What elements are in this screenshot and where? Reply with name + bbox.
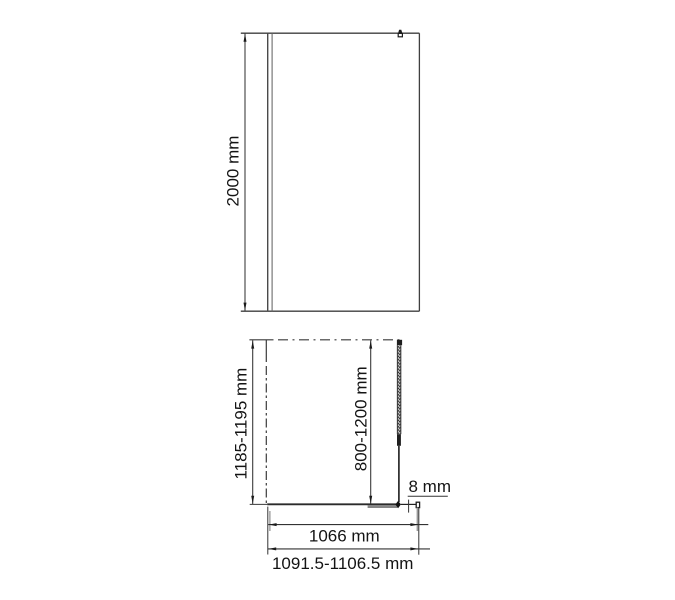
svg-text:8 mm: 8 mm: [409, 477, 452, 496]
svg-text:1066 mm: 1066 mm: [309, 526, 380, 545]
svg-text:800-1200 mm: 800-1200 mm: [352, 366, 371, 471]
svg-text:2000 mm: 2000 mm: [224, 136, 243, 207]
svg-text:1185-1195 mm: 1185-1195 mm: [232, 368, 251, 480]
svg-text:1091.5-1106.5 mm: 1091.5-1106.5 mm: [272, 554, 413, 573]
